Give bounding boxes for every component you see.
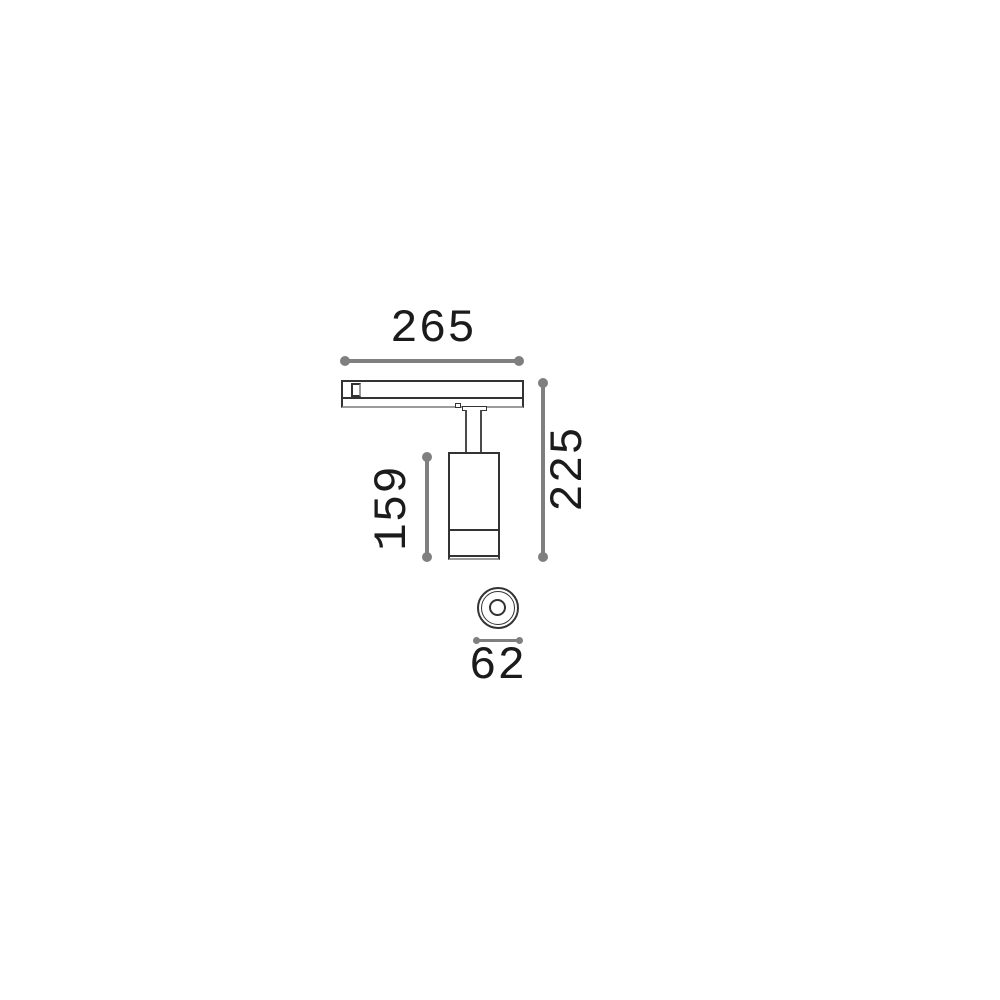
- dim-endpoint-dot: [422, 552, 432, 562]
- track-inner-line: [341, 397, 524, 399]
- dimension-drawing-canvas: 265 159 225 62: [0, 0, 1000, 1000]
- dim-label-body-diameter: 62: [469, 640, 526, 692]
- dim-endpoint-dot: [514, 356, 524, 366]
- spotlight-body: [448, 452, 500, 560]
- adapter-clip: [455, 403, 461, 408]
- track-body: [341, 380, 524, 408]
- dim-line-track-width: [344, 359, 520, 363]
- dim-endpoint-dot: [538, 552, 548, 562]
- dim-line-body-length: [425, 456, 429, 557]
- dim-label-track-width: 265: [390, 303, 476, 355]
- dim-endpoint-dot: [422, 452, 432, 462]
- dim-line-total-height: [541, 383, 545, 557]
- spotlight-body-rim-line: [448, 555, 500, 557]
- track-end-detail: [351, 383, 361, 397]
- spotlight-body-split-line: [448, 529, 500, 531]
- dim-endpoint-dot: [538, 378, 548, 388]
- bottom-view-lens-circle: [489, 599, 506, 616]
- dim-endpoint-dot: [340, 356, 350, 366]
- dim-label-body-length: 159: [367, 465, 419, 551]
- dim-label-total-height: 225: [543, 426, 595, 512]
- spotlight-stem: [465, 410, 482, 452]
